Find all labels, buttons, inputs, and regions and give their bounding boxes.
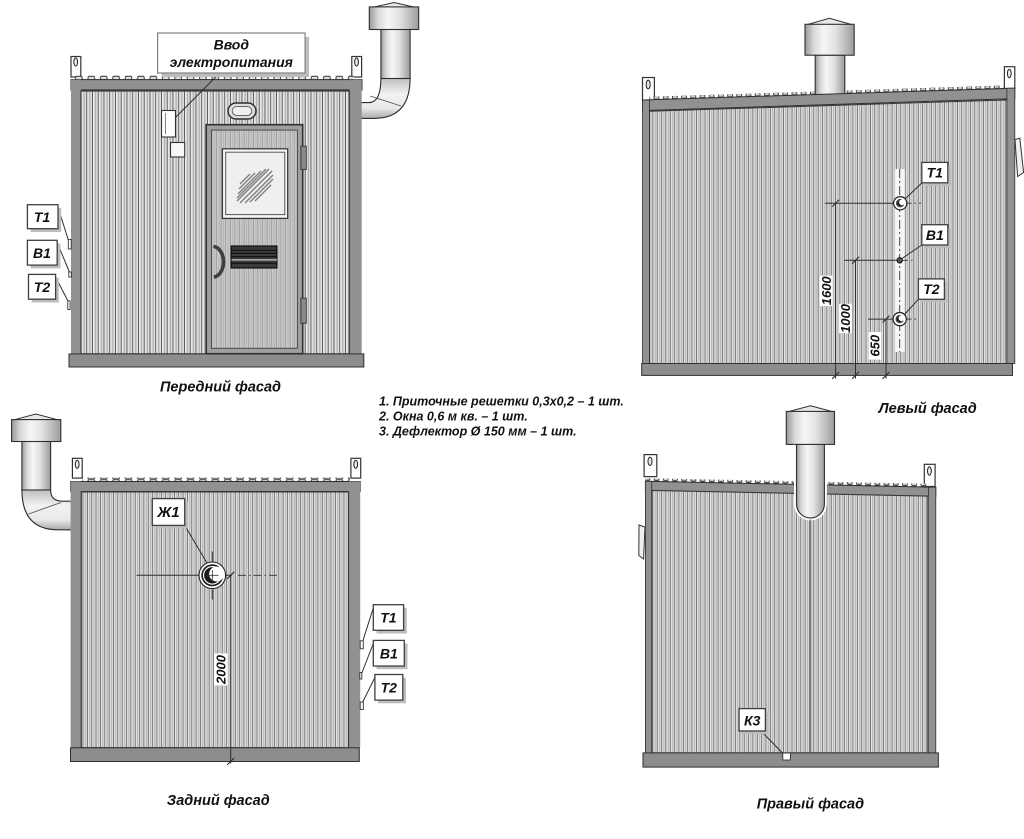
svg-text:2000: 2000	[213, 654, 228, 685]
svg-text:В1: В1	[33, 245, 51, 261]
svg-text:T2: T2	[34, 279, 51, 295]
svg-text:Задний фасад: Задний фасад	[167, 793, 270, 809]
svg-text:650: 650	[868, 334, 883, 356]
svg-text:T1: T1	[34, 209, 51, 225]
svg-text:1. Приточные решетки 0,3х0,2 –: 1. Приточные решетки 0,3х0,2 – 1 шт.	[379, 395, 624, 409]
svg-text:Ввод: Ввод	[214, 37, 250, 53]
svg-text:1600: 1600	[819, 276, 834, 306]
svg-text:2. Окна 0,6 м кв. – 1 шт.: 2. Окна 0,6 м кв. – 1 шт.	[378, 410, 528, 424]
svg-text:T1: T1	[927, 165, 944, 181]
svg-text:T2: T2	[923, 281, 940, 297]
svg-text:В1: В1	[380, 645, 398, 661]
svg-text:Ж1: Ж1	[156, 504, 179, 521]
svg-text:T1: T1	[380, 610, 397, 626]
svg-text:электропитания: электропитания	[170, 54, 293, 70]
svg-text:Левый фасад: Левый фасад	[878, 401, 977, 417]
svg-text:3. Дефлектор Ø 150 мм – 1 шт.: 3. Дефлектор Ø 150 мм – 1 шт.	[379, 425, 577, 439]
svg-text:Правый фасад: Правый фасад	[757, 797, 864, 813]
svg-text:1000: 1000	[838, 303, 853, 333]
svg-text:T2: T2	[381, 679, 398, 695]
svg-text:К3: К3	[744, 713, 761, 729]
svg-text:Передний фасад: Передний фасад	[160, 380, 281, 396]
svg-text:В1: В1	[926, 227, 944, 243]
